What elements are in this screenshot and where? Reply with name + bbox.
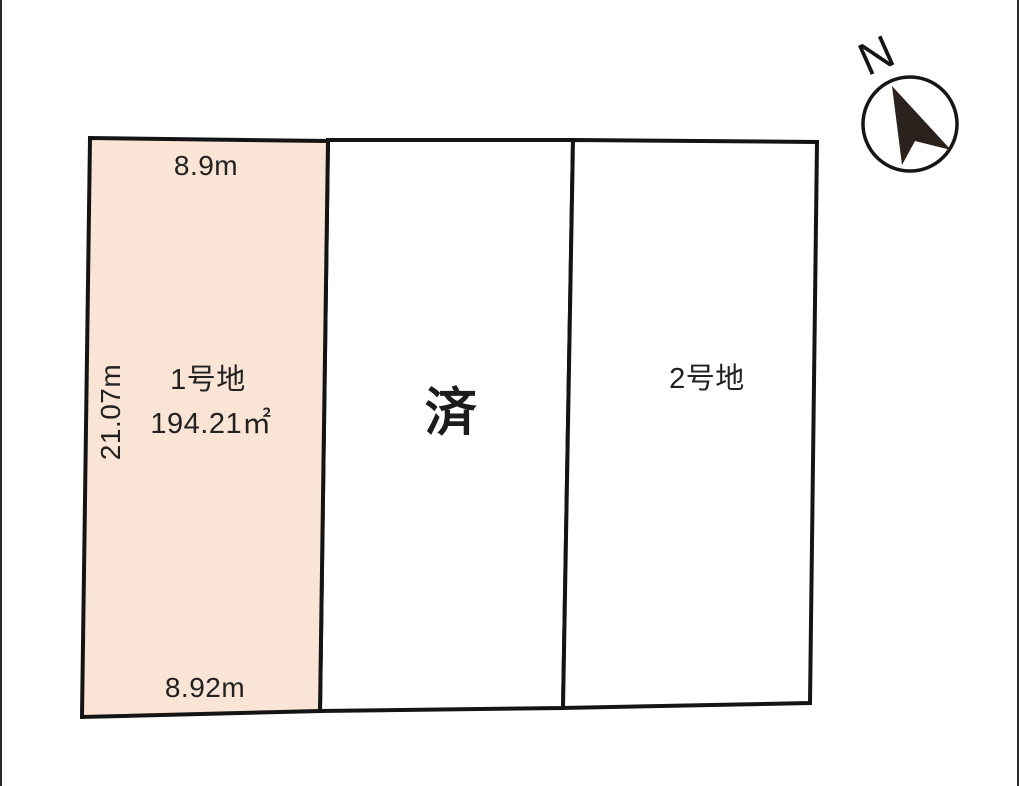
land-plot-diagram: N 8.9m 21.07m 1号地 194.21㎡ 8.92m 済 2号地 [0,0,1020,786]
lot-1-bottom-dimension: 8.92m [165,672,245,704]
plot-canvas [0,0,1020,786]
lot-1-area: 194.21㎡ [150,400,271,442]
lot-1-left-dimension: 21.07m [95,364,127,460]
lot-2-name: 2号地 [669,355,745,397]
lot-1-top-dimension: 8.9m [174,150,238,182]
north-arrow-icon [892,86,951,165]
lot-middle-sold-label: 済 [425,371,478,446]
lot-2-shape [563,140,817,708]
lot-1-name: 1号地 [170,356,246,398]
